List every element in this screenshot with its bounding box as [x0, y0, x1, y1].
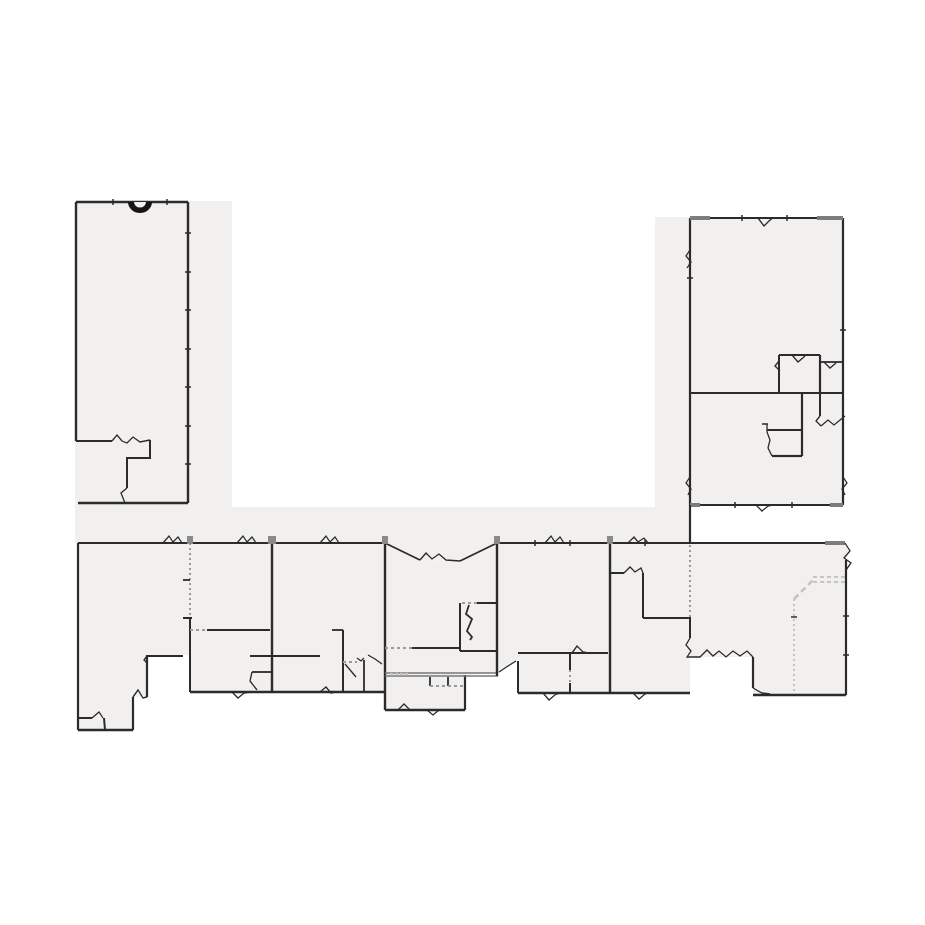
vestibule-wall: [104, 718, 105, 730]
wall-post: [268, 536, 276, 544]
wall-post: [187, 536, 193, 544]
wall-post: [382, 536, 388, 544]
wall-post: [607, 536, 613, 544]
wall-post: [494, 536, 500, 544]
right-building-surround-floor: [655, 217, 690, 543]
bottom-strip-floor: [78, 543, 849, 730]
floorplan-canvas: [0, 0, 925, 925]
floorplan-page: [0, 0, 925, 925]
left-building-floor: [75, 201, 232, 543]
